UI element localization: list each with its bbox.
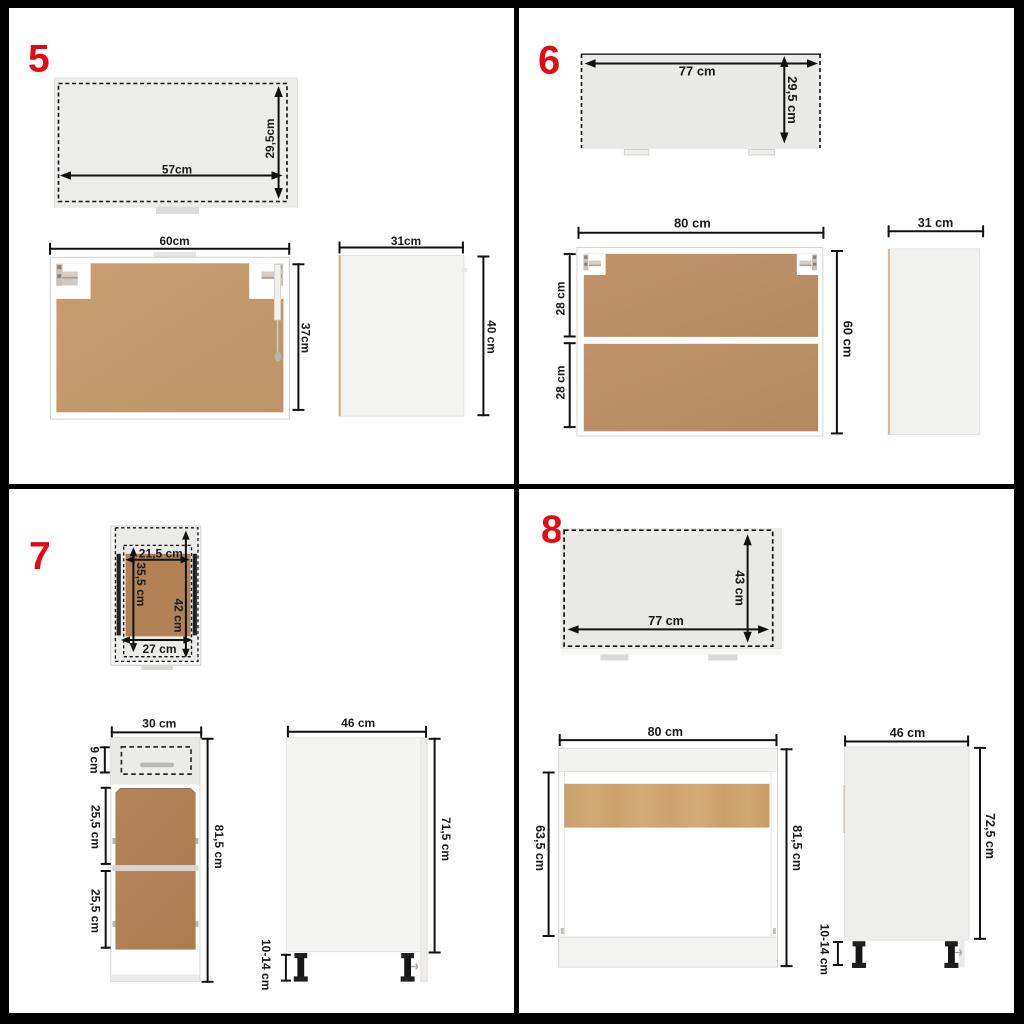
svg-text:80 cm: 80 cm [674,216,711,231]
svg-text:60cm: 60cm [160,234,190,248]
svg-text:9 cm: 9 cm [88,746,102,773]
svg-text:35,5 cm: 35,5 cm [134,562,148,606]
svg-text:21,5 cm: 21,5 cm [139,547,183,561]
svg-text:7: 7 [29,535,51,578]
svg-text:72,5 cm: 72,5 cm [983,813,997,859]
svg-text:30 cm: 30 cm [142,717,176,731]
svg-text:25,5 cm: 25,5 cm [89,889,103,933]
svg-text:28 cm: 28 cm [553,365,567,399]
svg-text:81,5 cm: 81,5 cm [790,825,804,871]
svg-text:46 cm: 46 cm [890,726,925,740]
svg-text:77 cm: 77 cm [679,64,716,79]
svg-text:31 cm: 31 cm [918,216,953,230]
svg-text:37cm: 37cm [299,323,313,353]
svg-text:63,5 cm: 63,5 cm [533,825,547,871]
svg-text:43 cm: 43 cm [733,570,747,605]
svg-text:8: 8 [541,509,563,552]
svg-text:31cm: 31cm [391,234,421,248]
svg-text:40 cm: 40 cm [485,320,499,353]
svg-text:28 cm: 28 cm [553,281,567,315]
svg-text:60 cm: 60 cm [841,321,856,358]
svg-text:57cm: 57cm [162,162,192,176]
svg-text:46 cm: 46 cm [341,716,375,730]
svg-text:6: 6 [538,39,560,83]
svg-text:10-14 cm: 10-14 cm [818,924,832,975]
svg-text:27 cm: 27 cm [142,642,176,656]
svg-text:80 cm: 80 cm [648,725,683,739]
svg-text:5: 5 [28,38,50,81]
svg-text:25,5 cm: 25,5 cm [89,805,103,849]
svg-text:81,5 cm: 81,5 cm [212,825,226,869]
svg-text:71,5 cm: 71,5 cm [439,817,453,861]
svg-text:10-14 cm: 10-14 cm [259,939,273,990]
svg-text:29,5cm: 29,5cm [263,118,277,158]
svg-text:29,5 cm: 29,5 cm [785,76,800,124]
svg-text:42 cm: 42 cm [172,598,186,632]
svg-text:77 cm: 77 cm [648,614,683,628]
